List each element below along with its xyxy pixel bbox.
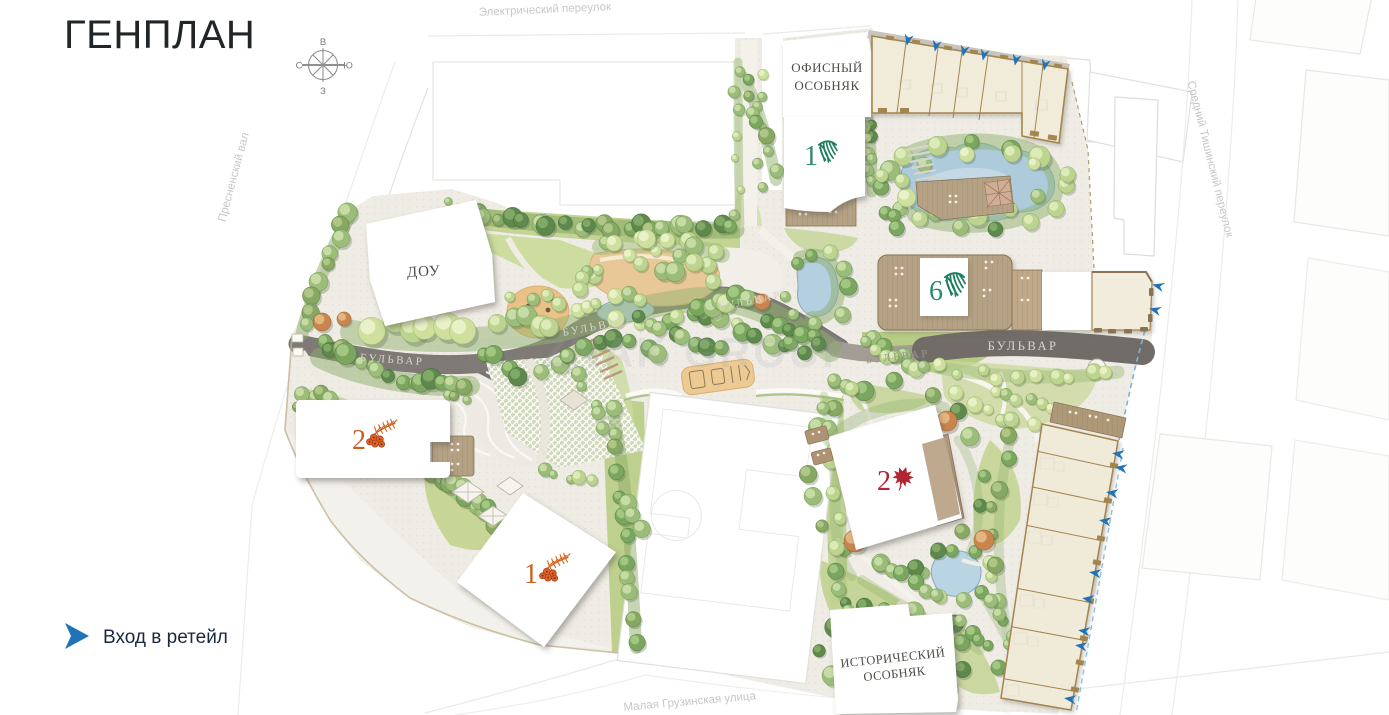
svg-text:1: 1 bbox=[804, 141, 818, 172]
svg-text:2: 2 bbox=[352, 425, 366, 456]
svg-text:Ю: Ю bbox=[343, 61, 353, 72]
svg-text:1: 1 bbox=[524, 559, 538, 590]
svg-text:ДОУ: ДОУ bbox=[406, 263, 441, 281]
svg-text:6: 6 bbox=[929, 276, 943, 307]
svg-text:Вход в ретейл: Вход в ретейл bbox=[103, 627, 228, 648]
svg-text:БУЛЬВАР: БУЛЬВАР bbox=[988, 339, 1059, 353]
svg-text:ГЕНПЛАН: ГЕНПЛАН bbox=[64, 13, 255, 57]
svg-text:ОСОБНЯК: ОСОБНЯК bbox=[794, 78, 859, 93]
svg-text:З: З bbox=[320, 86, 326, 97]
svg-text:ОФИСНЫЙ: ОФИСНЫЙ bbox=[791, 60, 863, 75]
svg-text:В: В bbox=[320, 37, 326, 48]
svg-text:2: 2 bbox=[877, 466, 891, 497]
svg-text:С: С bbox=[296, 61, 303, 72]
svg-text:ZNAK GROUP: ZNAK GROUP bbox=[541, 329, 853, 376]
